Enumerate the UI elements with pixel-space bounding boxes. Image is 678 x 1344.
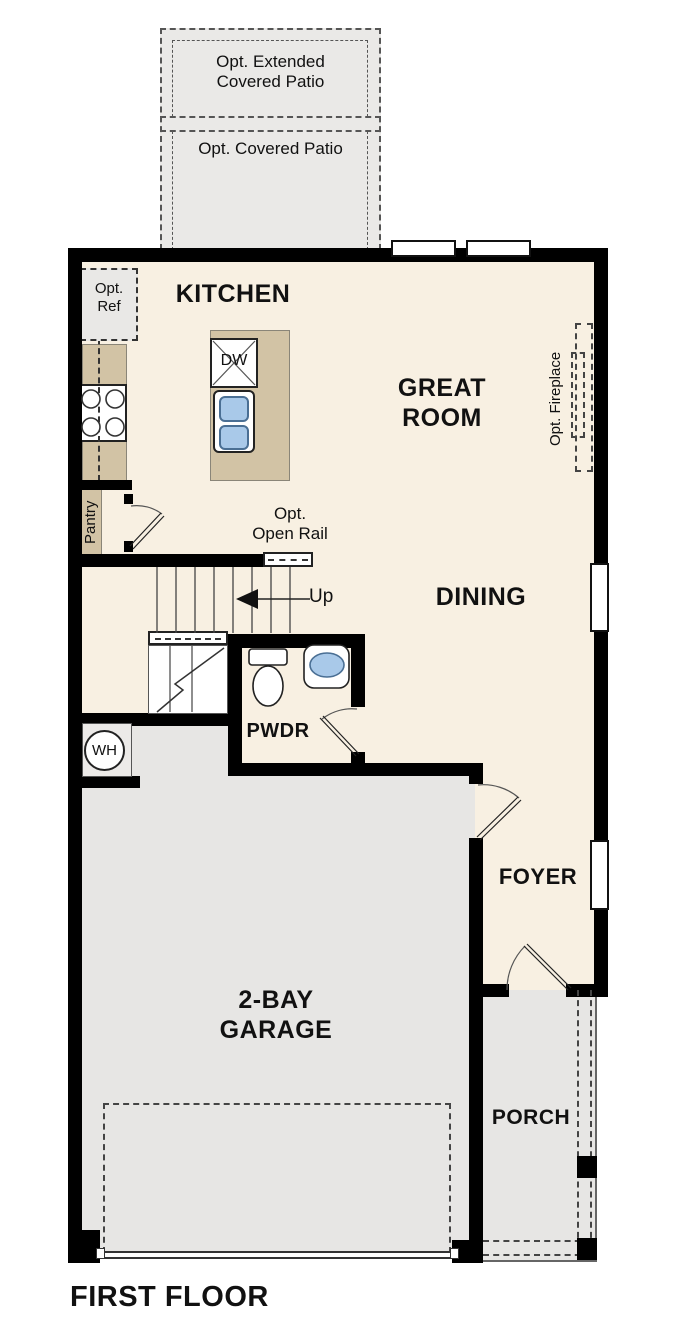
front-door [507, 944, 571, 990]
opt-fireplace-label: Opt. Fireplace [544, 328, 568, 470]
foyer-label: FOYER [478, 864, 598, 890]
stair-treads-upper [157, 567, 290, 633]
dishwasher-label: DW [210, 352, 258, 371]
linework-overlay [0, 0, 678, 1344]
garage-label: 2-BAY GARAGE [176, 986, 376, 1045]
pantry-door [130, 506, 164, 549]
toilet-icon [249, 649, 287, 706]
powder-door [320, 709, 359, 756]
water-heater-label: WH [84, 742, 125, 760]
covered-patio-label: Opt. Covered Patio [160, 139, 381, 159]
stove-burners-icon [82, 390, 124, 436]
garage-entry-door [477, 785, 521, 840]
great-room-label: GREAT ROOM [362, 374, 522, 433]
powder-sink-icon [304, 645, 349, 688]
powder-label: PWDR [238, 720, 318, 744]
extended-patio-label: Opt. Extended Covered Patio [160, 52, 381, 92]
pantry-label: Pantry [80, 488, 102, 556]
porch-label: PORCH [471, 1106, 591, 1131]
stairs-up-arrow-icon [236, 589, 310, 609]
up-label: Up [309, 586, 353, 608]
opt-ref-label: Opt. Ref [80, 280, 138, 315]
floor-plan: Opt. Extended Covered Patio Opt. Covered… [0, 0, 678, 1344]
dining-label: DINING [401, 583, 561, 613]
kitchen-label: KITCHEN [153, 280, 313, 310]
stair-treads-lower [157, 646, 224, 712]
open-rail-label: Opt. Open Rail [215, 504, 365, 544]
plan-title: FIRST FLOOR [70, 1280, 370, 1314]
